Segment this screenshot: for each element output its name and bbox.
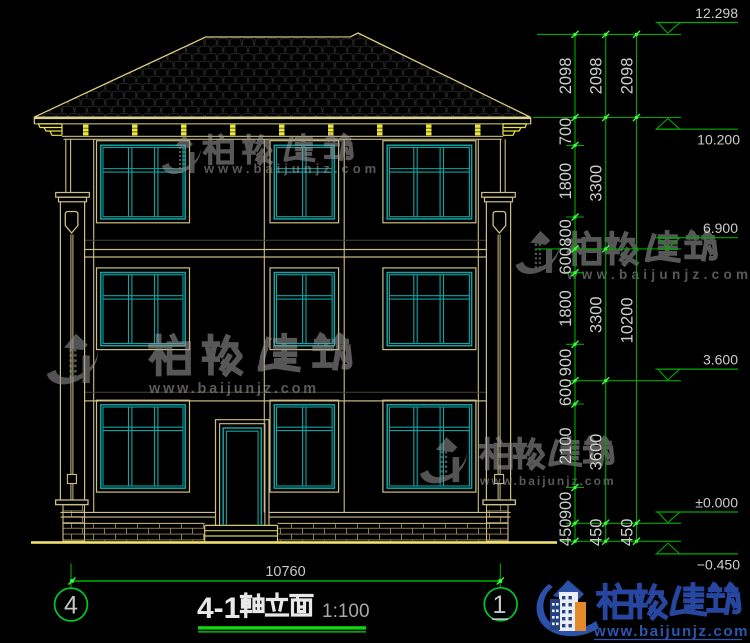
svg-text:6.900: 6.900 [703,220,738,236]
svg-text:www.baijunjz.com: www.baijunjz.com [203,161,380,176]
svg-text:1800: 1800 [557,163,575,200]
svg-text:700: 700 [557,118,575,146]
svg-text:12.298: 12.298 [695,5,738,21]
svg-text:4-1: 4-1 [197,592,240,625]
svg-text:www.baijunjz.com: www.baijunjz.com [148,381,319,397]
svg-text:1: 1 [493,591,507,619]
svg-text:−0.450: −0.450 [697,556,740,572]
svg-text:2098: 2098 [619,58,637,95]
svg-text:www.baijunjz.com: www.baijunjz.com [479,474,616,488]
svg-text:10.200: 10.200 [697,132,740,148]
svg-text:450: 450 [619,519,637,547]
svg-text:600: 600 [557,247,575,275]
svg-text:3300: 3300 [588,165,606,202]
svg-text:900: 900 [557,349,575,377]
svg-text:10760: 10760 [265,564,305,580]
svg-text:1:100: 1:100 [322,601,370,622]
svg-text:2100: 2100 [557,427,575,464]
svg-text:900: 900 [557,492,575,520]
svg-text:www.baijunjz.com: www.baijunjz.com [566,267,750,282]
svg-text:2098: 2098 [557,58,575,95]
svg-text:10200: 10200 [619,297,637,343]
svg-text:450: 450 [588,519,606,547]
svg-text:800: 800 [557,219,575,247]
svg-text:www.baijunjz.com: www.baijunjz.com [593,623,749,640]
svg-text:4: 4 [64,592,78,620]
svg-text:2098: 2098 [588,58,606,95]
svg-text:600: 600 [557,379,575,407]
svg-text:3600: 3600 [588,434,606,471]
svg-text:±0.000: ±0.000 [695,495,738,511]
svg-text:1800: 1800 [557,290,575,327]
svg-text:3300: 3300 [588,296,606,333]
svg-text:3.600: 3.600 [703,352,738,368]
svg-text:450: 450 [557,519,575,547]
